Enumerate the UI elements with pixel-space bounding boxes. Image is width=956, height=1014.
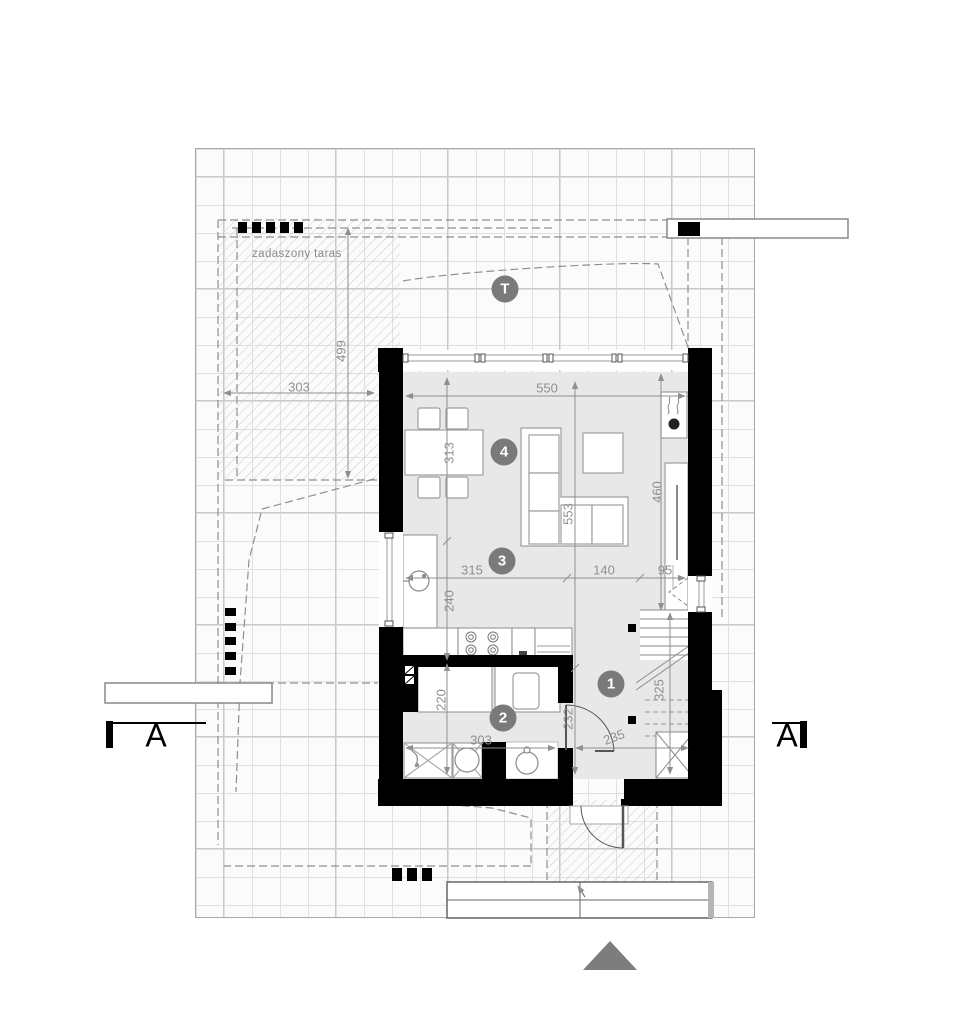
entrance-landing [570,806,628,824]
dim-terrace-depth: 499 [334,340,349,362]
dim-seg-95: 95 [658,563,672,578]
fence-bar-north [667,219,848,238]
dim-bath-width: 303 [470,733,492,748]
section-bar-left [106,721,113,748]
dim-living-depth: 553 [561,503,576,525]
section-bar-right [800,721,807,748]
dim-seg-315: 315 [461,563,483,578]
dim-dining-zone: 313 [442,442,457,464]
exterior-steps [447,882,714,918]
dim-stair-run: 325 [652,679,667,701]
window-west [379,533,403,626]
fence-bar-west [105,683,272,703]
terrace-label: zadaszony taras [252,248,342,260]
marker-living: 4 [491,439,518,466]
tv-sideboard [665,463,688,613]
dim-tv-wall: 460 [650,481,665,503]
plan-drawing [0,0,956,1014]
dim-kitchen-zone: 240 [442,590,457,612]
marker-kitchen: 3 [489,548,516,575]
dim-living-width: 550 [536,381,558,396]
section-label-left: A [145,718,166,755]
dim-seg-140: 140 [593,563,615,578]
marker-terrace: T [492,276,519,303]
marker-hall: 1 [598,671,625,698]
armchair [583,433,623,473]
dim-terrace-width: 303 [288,380,310,395]
floor-plan-page: zadaszony taras 303 499 550 313 240 553 … [0,0,956,1014]
marker-bathroom: 2 [490,705,517,732]
window-north [403,350,688,370]
dim-bath-220: 220 [434,689,449,711]
dim-hall-depth: 232 [561,708,576,730]
section-label-right: A [776,718,797,755]
north-arrow-icon [583,941,637,970]
